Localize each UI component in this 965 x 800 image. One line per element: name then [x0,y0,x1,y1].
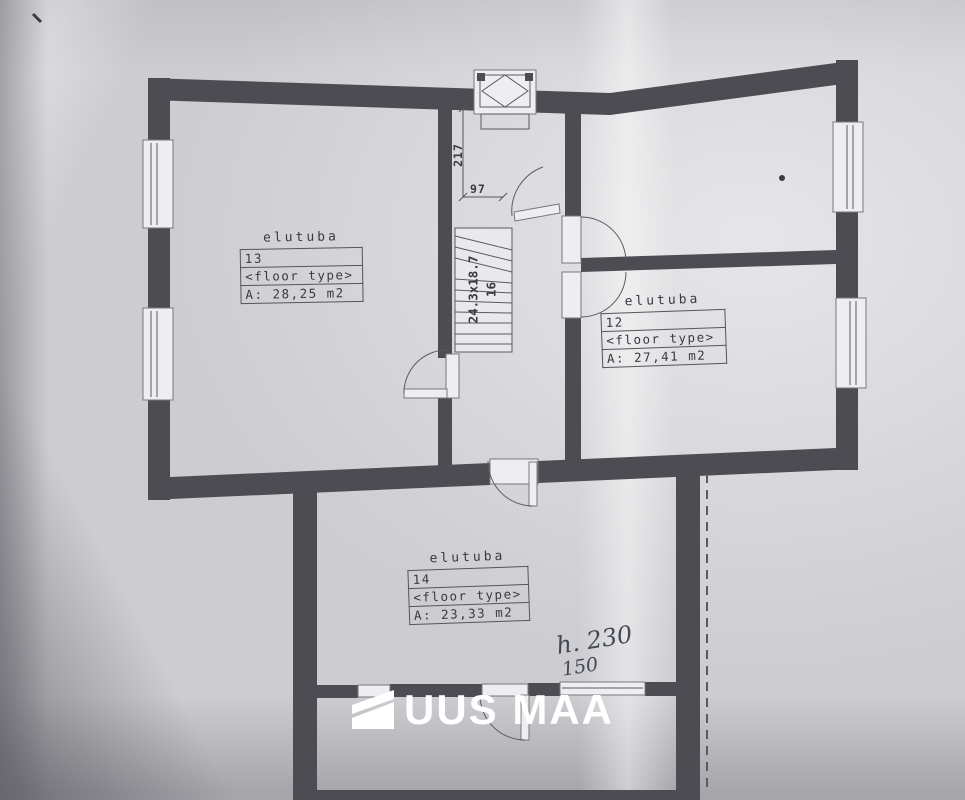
scan-dot [779,175,785,181]
uusmaa-logo: UUS MAA [348,684,648,736]
scan-mark [33,14,41,22]
floor-plan-drawing [0,0,965,800]
dimension-217: 217 [451,143,465,167]
chimney-symbol [474,70,536,129]
wall-hall-lower [565,318,581,466]
room13-area: A: 28,25 m2 [241,283,363,303]
room14-right-wall [676,463,700,800]
room-label-12: elutuba 12 <floor type> A: 27,41 m2 [600,291,727,368]
room13-number: 13 [240,247,362,267]
scanned-floor-plan-page: 217 97 24.3x18.7 16 elutuba 13 <floor ty… [0,0,965,800]
stair-size-label: 24.3x18.7 [466,255,481,325]
room12-name: elutuba [600,291,725,310]
window-right-1 [833,122,863,212]
door-ne-room [562,216,626,263]
wall-room13-hall [438,95,452,358]
room13-info-box: 13 <floor type> A: 28,25 m2 [240,247,364,304]
room14-area: A: 23,33 m2 [409,602,530,624]
door-room14-entry [488,459,538,506]
window-left-2 [143,308,173,400]
wall-room13-hall-stub [438,396,452,468]
wall-hall-upper [565,93,581,217]
room14-left-wall [293,488,317,800]
bottom-edge-wall [310,790,676,800]
room14-bottom-wall-d [645,682,676,696]
room12-info-box: 12 <floor type> A: 27,41 m2 [600,309,727,368]
uusmaa-logo-text: UUS MAA [404,686,614,734]
dimension-97: 97 [470,182,486,196]
window-right-2 [836,298,866,388]
room14-name: elutuba [407,548,528,567]
room12-area: A: 27,41 m2 [602,345,727,367]
stair-step-count: 16 [484,275,499,305]
room13-floor-type: <floor type> [241,265,363,285]
door-room13 [404,350,459,398]
room14-info-box: 14 <floor type> A: 23,33 m2 [407,566,530,625]
bottom-wall-left [148,463,490,500]
window-left-1 [143,140,173,228]
room-label-14: elutuba 14 <floor type> A: 23,33 m2 [407,548,530,625]
door-hall-diagonal [512,167,560,221]
room-label-13: elutuba 13 <floor type> A: 28,25 m2 [239,229,363,304]
wall-ne-room12 [581,250,836,272]
room13-name: elutuba [239,229,362,246]
